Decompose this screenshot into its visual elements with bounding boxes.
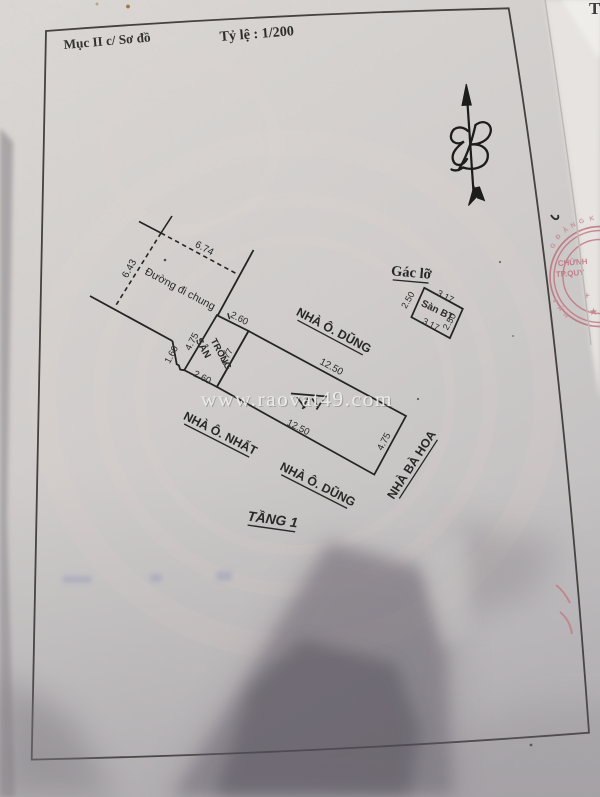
svg-text:www.raovat49.com: www.raovat49.com — [201, 387, 393, 411]
svg-text:T: T — [589, 0, 600, 18]
svg-text:★: ★ — [589, 307, 598, 318]
